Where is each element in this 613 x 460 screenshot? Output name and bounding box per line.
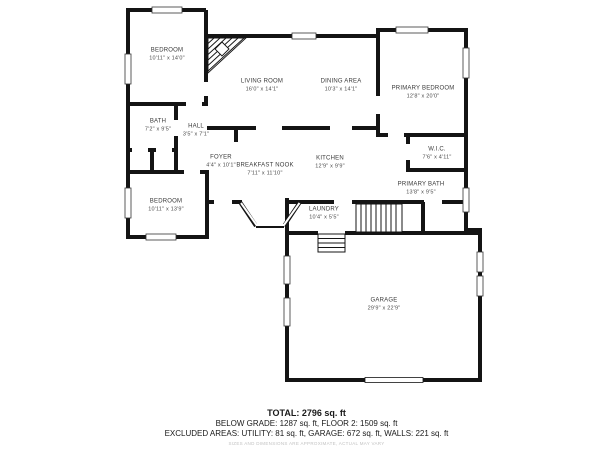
room-label-hall: HALL 3'5" x 7'1" <box>183 124 209 139</box>
room-dims: 7'2" x 9'5" <box>145 126 171 133</box>
room-name: LIVING ROOM <box>241 79 283 85</box>
disclaimer-text: SIZES AND DIMENSIONS ARE APPROXIMATE, AC… <box>0 441 613 446</box>
room-dims: 29'9" x 22'9" <box>368 305 401 312</box>
room-dims: 7'6" x 4'11" <box>422 154 451 161</box>
excluded-areas-text: EXCLUDED AREAS: UTILITY: 81 sq. ft, GARA… <box>0 429 613 438</box>
room-dims: 12'8" x 20'0" <box>392 93 455 100</box>
room-label-bedroom-1: BEDROOM 10'11" x 14'0" <box>149 48 185 63</box>
room-label-laundry: LAUNDRY 10'4" x 5'5" <box>309 207 339 222</box>
room-dims: 7'11" x 11'10" <box>236 170 293 177</box>
room-name: BEDROOM <box>151 48 183 54</box>
room-name: PRIMARY BEDROOM <box>392 86 455 92</box>
corner-hatch <box>208 38 246 73</box>
room-dims: 10'11" x 13'9" <box>148 206 184 213</box>
room-name: GARAGE <box>371 298 398 304</box>
room-dims: 10'4" x 5'5" <box>309 214 339 221</box>
room-label-breakfast-nook: BREAKFAST NOOK 7'11" x 11'10" <box>236 163 293 178</box>
room-name: PRIMARY BATH <box>398 182 445 188</box>
room-label-dining-area: DINING AREA 10'3" x 14'1" <box>321 79 362 94</box>
room-dims: 10'3" x 14'1" <box>321 86 362 93</box>
room-name: BREAKFAST NOOK <box>236 163 293 169</box>
room-label-primary-bedroom: PRIMARY BEDROOM 12'8" x 20'0" <box>392 86 455 101</box>
floor-areas-text: BELOW GRADE: 1287 sq. ft, FLOOR 2: 1509 … <box>0 419 613 428</box>
room-name: KITCHEN <box>316 156 344 162</box>
staircase <box>356 204 402 232</box>
entry-steps <box>318 234 345 252</box>
room-name: BEDROOM <box>150 199 182 205</box>
room-label-kitchen: KITCHEN 12'9" x 9'9" <box>315 156 345 171</box>
room-dims: 4'4" x 10'1" <box>206 162 236 169</box>
room-label-wic: W.I.C. 7'6" x 4'11" <box>422 147 451 162</box>
bay-window-glazing <box>241 203 300 225</box>
floor-plan-drawing <box>0 0 613 460</box>
room-dims: 10'11" x 14'0" <box>149 55 185 62</box>
room-name: BATH <box>150 119 166 125</box>
room-dims: 16'0" x 14'1" <box>241 86 283 93</box>
room-label-bath: BATH 7'2" x 9'5" <box>145 119 171 134</box>
room-label-primary-bath: PRIMARY BATH 13'8" x 9'5" <box>398 182 445 197</box>
room-name: HALL <box>188 124 204 130</box>
floor-plan-page: BEDROOM 10'11" x 14'0" LIVING ROOM 16'0"… <box>0 0 613 460</box>
garage-door <box>365 378 423 383</box>
room-name: FOYER <box>210 155 232 161</box>
room-label-living-room: LIVING ROOM 16'0" x 14'1" <box>241 79 283 94</box>
room-dims: 3'5" x 7'1" <box>183 131 209 138</box>
total-area-text: TOTAL: 2796 sq. ft <box>0 408 613 418</box>
room-label-foyer: FOYER 4'4" x 10'1" <box>206 155 236 170</box>
room-name: W.I.C. <box>428 147 446 153</box>
room-label-bedroom-2: BEDROOM 10'11" x 13'9" <box>148 199 184 214</box>
room-dims: 12'9" x 9'9" <box>315 163 345 170</box>
room-label-garage: GARAGE 29'9" x 22'9" <box>368 298 401 313</box>
room-name: LAUNDRY <box>309 207 339 213</box>
room-dims: 13'8" x 9'5" <box>398 189 445 196</box>
room-name: DINING AREA <box>321 79 362 85</box>
